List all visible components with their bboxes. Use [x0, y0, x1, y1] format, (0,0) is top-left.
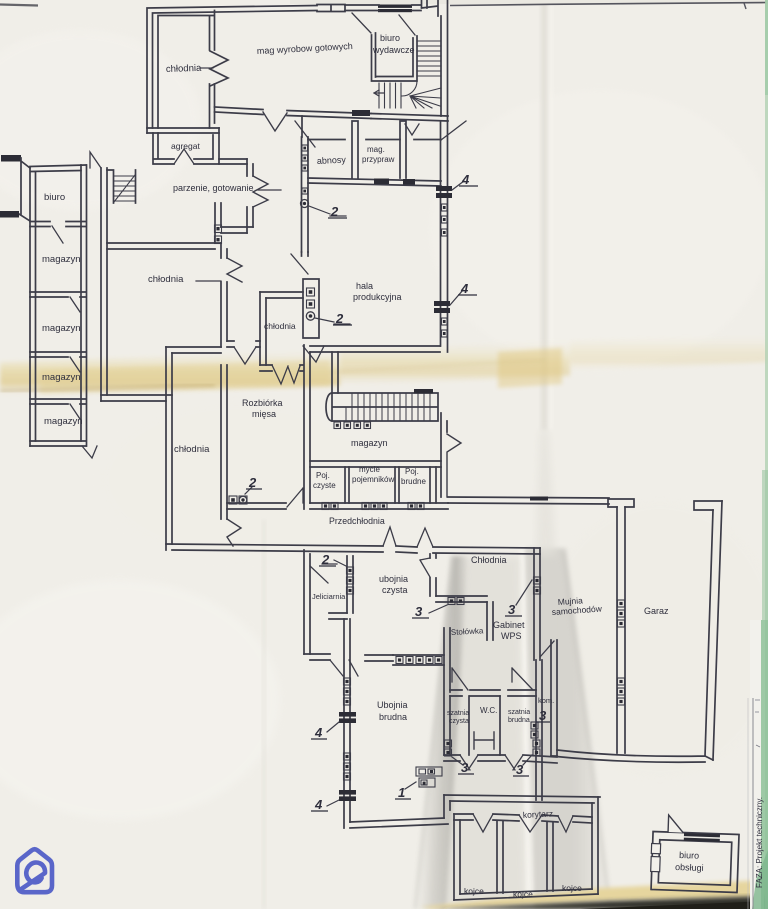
svg-text:brudne: brudne [401, 477, 426, 486]
svg-text:produkcyjna: produkcyjna [353, 292, 402, 302]
svg-text:agregat: agregat [171, 141, 200, 151]
svg-text:ubojnia: ubojnia [379, 574, 408, 584]
svg-text:1: 1 [398, 785, 405, 800]
svg-text:3: 3 [461, 760, 469, 775]
svg-text:4: 4 [461, 172, 470, 187]
svg-text:Rozbiórka: Rozbiórka [242, 398, 283, 408]
svg-text:korytarz: korytarz [523, 808, 554, 820]
svg-text:przypraw: przypraw [362, 155, 395, 164]
svg-text:Gabinet: Gabinet [493, 620, 525, 630]
svg-text:magazyn: magazyn [44, 416, 83, 427]
svg-text:chłodnia: chłodnia [264, 321, 296, 331]
svg-text:czyste: czyste [313, 481, 336, 490]
svg-text:mięsa: mięsa [252, 409, 276, 419]
svg-text:chłodnia: chłodnia [174, 444, 210, 455]
svg-text:Jeliciarnia: Jeliciarnia [312, 592, 346, 601]
svg-text:3: 3 [539, 708, 547, 723]
svg-text:hala: hala [356, 281, 373, 291]
svg-text:Stołówka: Stołówka [451, 626, 484, 637]
svg-text:chłodnia: chłodnia [166, 63, 202, 75]
svg-text:4: 4 [314, 725, 323, 740]
svg-text:4: 4 [460, 281, 469, 296]
svg-text:kojce: kojce [464, 886, 484, 896]
svg-text:Garaz: Garaz [644, 606, 669, 616]
svg-text:2: 2 [321, 552, 330, 567]
svg-text:WPS: WPS [501, 631, 522, 641]
svg-text:kom.: kom. [538, 696, 554, 705]
svg-text:Poj.: Poj. [405, 467, 419, 476]
svg-text:mag.: mag. [367, 145, 385, 154]
svg-text:biuro: biuro [679, 850, 699, 861]
svg-text:biuro: biuro [380, 33, 400, 43]
svg-text:magazyn: magazyn [42, 323, 81, 334]
svg-text:Przedchłodnia: Przedchłodnia [329, 516, 385, 526]
svg-text:chłodnia: chłodnia [148, 274, 184, 285]
svg-text:W.C.: W.C. [480, 706, 497, 715]
svg-text:2: 2 [335, 311, 344, 326]
svg-text:abnosy: abnosy [317, 154, 347, 166]
svg-text:brudna: brudna [508, 717, 530, 724]
svg-text:FAZA: Projekt techniczny.: FAZA: Projekt techniczny. [755, 797, 764, 888]
svg-text:3: 3 [415, 604, 423, 619]
svg-text:Chłodnia: Chłodnia [471, 555, 507, 565]
svg-text:pojemników: pojemników [352, 475, 394, 484]
svg-text:mycie: mycie [359, 465, 380, 474]
svg-text:magazyn: magazyn [351, 438, 388, 448]
svg-text:magazyn: magazyn [42, 372, 81, 383]
svg-text:Ubojnia: Ubojnia [377, 700, 408, 710]
svg-text:czysta: czysta [449, 718, 469, 725]
svg-text:szatnia: szatnia [447, 710, 469, 717]
svg-text:3: 3 [516, 762, 524, 777]
svg-text:4: 4 [314, 797, 323, 812]
svg-text:brudna: brudna [379, 712, 407, 722]
svg-text:parzenie, gotowanie: parzenie, gotowanie [173, 183, 254, 193]
svg-text:czysta: czysta [382, 585, 408, 595]
svg-text:biuro: biuro [44, 192, 65, 203]
svg-text:obsługi: obsługi [675, 862, 704, 873]
svg-text:2: 2 [248, 475, 257, 490]
svg-text:magazyn: magazyn [42, 254, 81, 265]
svg-text:2: 2 [330, 204, 339, 219]
svg-text:kojce: kojce [513, 889, 533, 899]
svg-text:szatnia: szatnia [508, 709, 530, 716]
svg-text:3: 3 [508, 602, 516, 617]
svg-text:kojce: kojce [562, 883, 582, 893]
svg-text:wydawcze: wydawcze [372, 45, 415, 55]
svg-text:Poj.: Poj. [316, 471, 330, 480]
